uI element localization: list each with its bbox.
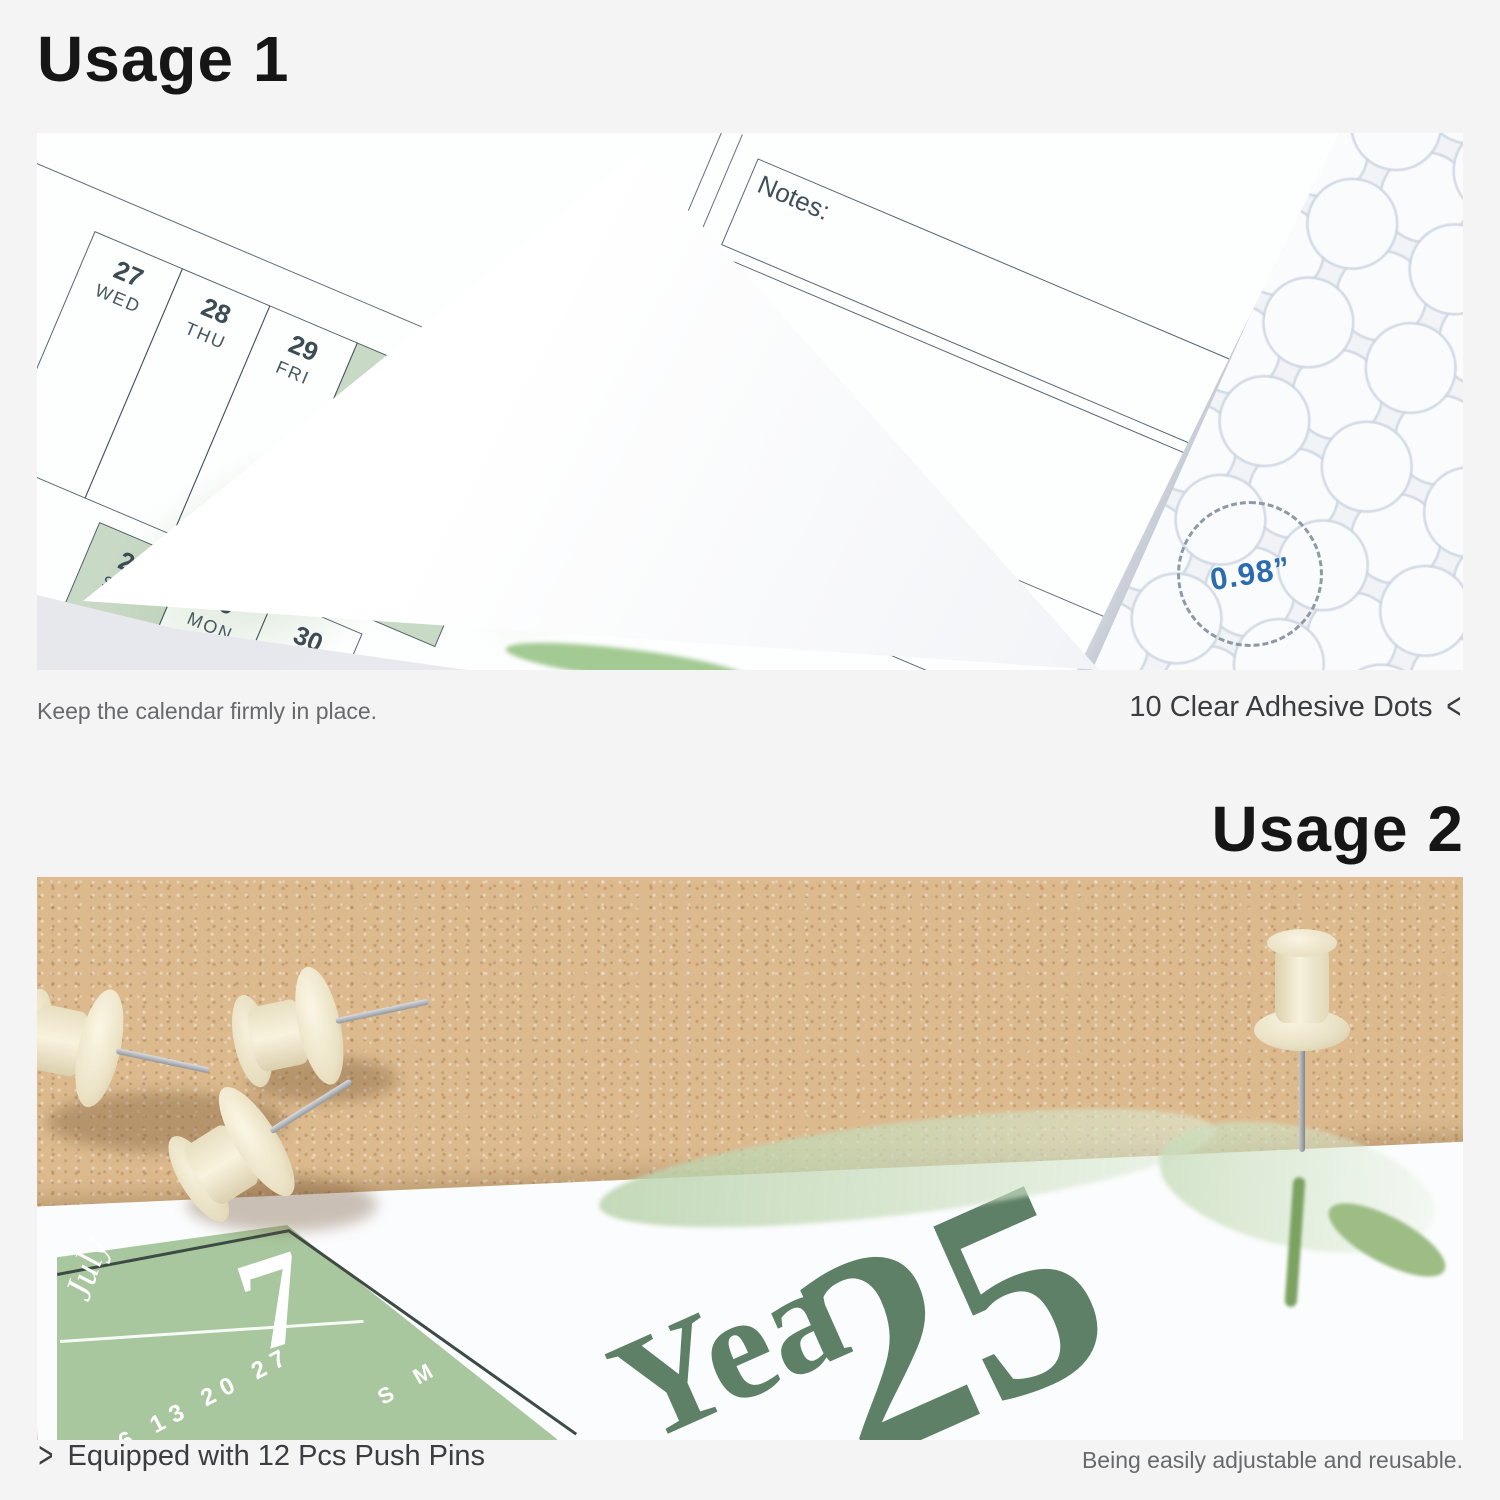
usage1-photo: 27 WED 28 THU 29 FRI 30 SAT 31 SUN xyxy=(37,133,1463,670)
usage2-caption-left-text: Equipped with 12 Pcs Push Pins xyxy=(68,1439,486,1474)
usage1-caption-right-text: 10 Clear Adhesive Dots xyxy=(1129,690,1432,725)
dot-size-highlight: 0.98” xyxy=(1177,501,1323,647)
usage1-title: Usage 1 xyxy=(37,22,289,96)
dot-size-label: 0.98” xyxy=(1207,550,1292,598)
pin-needle xyxy=(335,999,429,1025)
usage2-caption-right: Being easily adjustable and reusable. xyxy=(1082,1447,1463,1475)
pin-needle xyxy=(269,1079,353,1135)
product-infographic: Usage 1 27 WED 28 THU 29 FRI xyxy=(0,0,1500,1500)
usage2-photo: 7 July 6 13 20 27 S M 25 Yea xyxy=(37,877,1463,1440)
chevron-left-icon: < xyxy=(1447,685,1462,730)
usage1-caption-right: 10 Clear Adhesive Dots < xyxy=(1129,689,1463,725)
pin-needle xyxy=(1299,1037,1305,1152)
pin-cap xyxy=(1267,929,1337,957)
usage2-title: Usage 2 xyxy=(1212,792,1464,866)
usage2-caption-left: > Equipped with 12 Pcs Push Pins xyxy=(37,1438,485,1474)
chevron-right-icon: > xyxy=(38,1434,53,1479)
push-pin-standing xyxy=(1252,917,1352,1187)
pin-needle xyxy=(116,1048,210,1074)
usage1-caption-left: Keep the calendar firmly in place. xyxy=(37,698,377,726)
